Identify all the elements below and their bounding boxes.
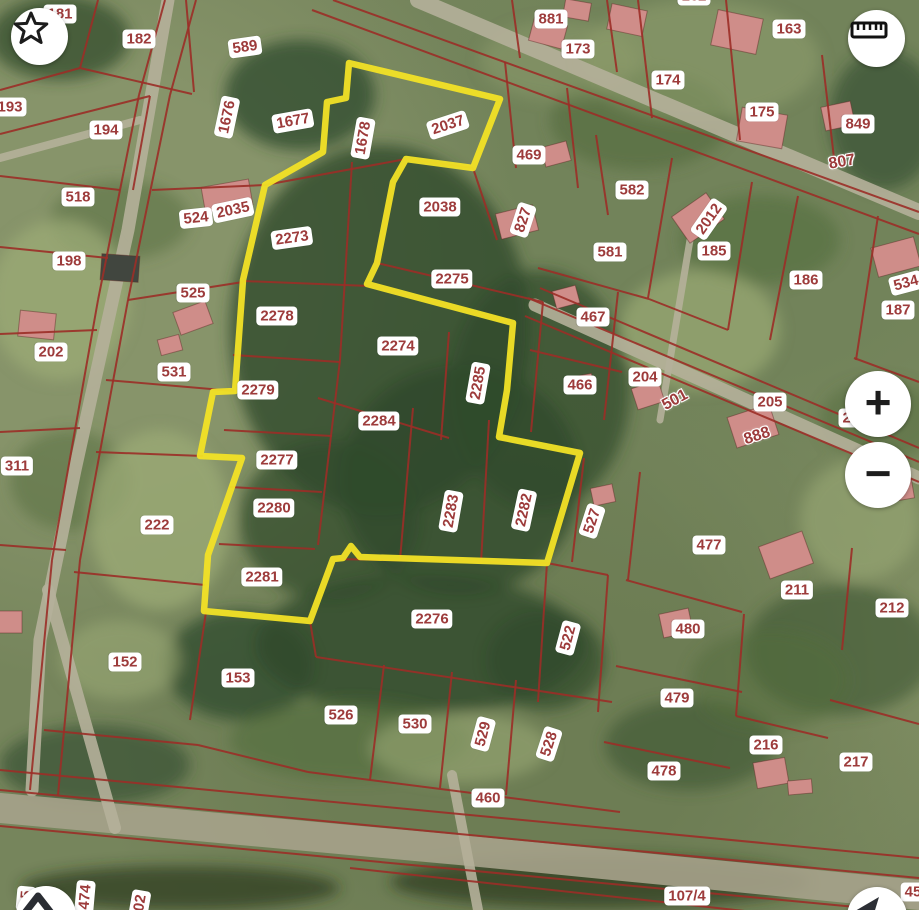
parcel-label-849[interactable]: 849 bbox=[841, 115, 874, 134]
parcel-label-2280[interactable]: 2280 bbox=[253, 499, 294, 518]
parcel-label-216[interactable]: 216 bbox=[749, 736, 782, 755]
parcel-label-530[interactable]: 530 bbox=[398, 715, 431, 734]
parcel-label-173[interactable]: 173 bbox=[561, 40, 594, 59]
parcel-label-202[interactable]: 202 bbox=[34, 343, 67, 362]
parcel-label-194[interactable]: 194 bbox=[89, 121, 122, 140]
selected-parcels-outline bbox=[0, 0, 919, 910]
parcel-label-311[interactable]: 311 bbox=[1, 457, 33, 476]
parcel-label-211[interactable]: 211 bbox=[781, 581, 813, 600]
parcel-label-582[interactable]: 582 bbox=[615, 181, 648, 200]
parcel-label-478[interactable]: 478 bbox=[647, 762, 680, 781]
zoom-in-button[interactable]: + bbox=[845, 371, 911, 437]
map-canvas[interactable]: 1811825898811731621631741758498071931941… bbox=[0, 0, 919, 910]
parcel-label-477[interactable]: 477 bbox=[692, 536, 725, 555]
parcel-label-107-4[interactable]: 107/4 bbox=[664, 887, 710, 906]
parcel-label-174[interactable]: 174 bbox=[651, 71, 684, 90]
parcel-label-2274[interactable]: 2274 bbox=[377, 337, 418, 356]
parcel-label-205[interactable]: 205 bbox=[753, 393, 786, 412]
parcel-label-204[interactable]: 204 bbox=[628, 368, 661, 387]
parcel-label-881[interactable]: 881 bbox=[534, 10, 567, 29]
parcel-label-466[interactable]: 466 bbox=[563, 376, 596, 395]
parcel-label-518[interactable]: 518 bbox=[61, 188, 94, 207]
parcel-label-2275[interactable]: 2275 bbox=[431, 270, 472, 289]
parcel-label-581[interactable]: 581 bbox=[593, 243, 626, 262]
parcel-label-469[interactable]: 469 bbox=[512, 146, 545, 165]
parcel-label-2278[interactable]: 2278 bbox=[256, 307, 297, 326]
parcel-label-162[interactable]: 162 bbox=[677, 0, 710, 6]
parcel-label-467[interactable]: 467 bbox=[576, 308, 609, 327]
parcel-label-474[interactable]: 474 bbox=[74, 880, 96, 910]
parcel-label-460[interactable]: 460 bbox=[471, 789, 504, 808]
parcel-label-212[interactable]: 212 bbox=[875, 599, 908, 618]
parcel-label-186[interactable]: 186 bbox=[789, 271, 822, 290]
parcel-label-2284[interactable]: 2284 bbox=[358, 412, 399, 431]
parcel-label-526[interactable]: 526 bbox=[324, 706, 357, 725]
plus-icon: + bbox=[865, 379, 892, 425]
parcel-label-152[interactable]: 152 bbox=[108, 653, 141, 672]
parcel-label-182[interactable]: 182 bbox=[122, 30, 155, 49]
parcel-label-217[interactable]: 217 bbox=[839, 753, 872, 772]
favorites-button[interactable] bbox=[11, 8, 68, 65]
parcel-label-2279[interactable]: 2279 bbox=[237, 381, 278, 400]
parcel-label-222[interactable]: 222 bbox=[140, 516, 173, 535]
parcel-label-45[interactable]: 45 bbox=[901, 883, 919, 902]
parcel-label-187[interactable]: 187 bbox=[881, 301, 914, 320]
parcel-label-525[interactable]: 525 bbox=[176, 284, 209, 303]
parcel-label-479[interactable]: 479 bbox=[660, 689, 693, 708]
parcel-label-153[interactable]: 153 bbox=[221, 669, 254, 688]
parcel-label-185[interactable]: 185 bbox=[697, 242, 730, 261]
parcel-label-524[interactable]: 524 bbox=[179, 207, 214, 229]
parcel-label-2281[interactable]: 2281 bbox=[241, 568, 282, 587]
measure-button[interactable] bbox=[848, 10, 905, 67]
parcel-label-2277[interactable]: 2277 bbox=[256, 451, 297, 470]
minus-icon: − bbox=[865, 450, 892, 496]
zoom-out-button[interactable]: − bbox=[845, 442, 911, 508]
parcel-label-2038[interactable]: 2038 bbox=[419, 198, 460, 217]
parcel-label-480[interactable]: 480 bbox=[671, 620, 704, 639]
parcel-label-175[interactable]: 175 bbox=[745, 103, 778, 122]
parcel-label-193[interactable]: 193 bbox=[0, 98, 27, 117]
parcel-label-531[interactable]: 531 bbox=[157, 363, 190, 382]
parcel-label-198[interactable]: 198 bbox=[52, 252, 85, 271]
parcel-label-163[interactable]: 163 bbox=[772, 20, 805, 39]
parcel-label-02[interactable]: 02 bbox=[129, 889, 152, 910]
parcel-label-2276[interactable]: 2276 bbox=[411, 610, 452, 629]
